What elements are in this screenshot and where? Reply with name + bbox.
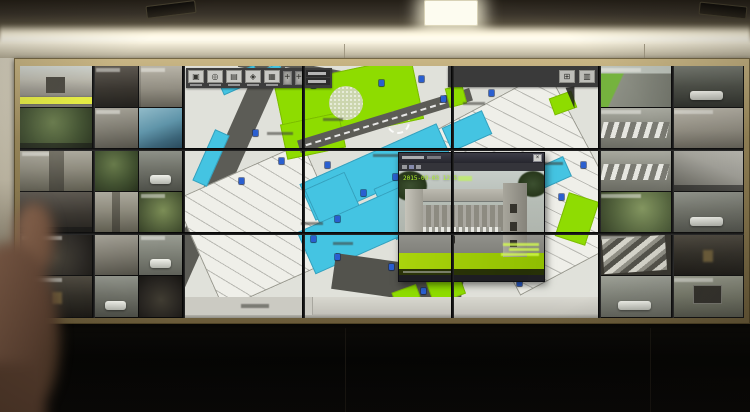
- monitor-bezel: [20, 148, 744, 151]
- camera-tile[interactable]: [94, 234, 138, 275]
- coordinate-readouts: [306, 70, 330, 86]
- camera-marker-icon[interactable]: [239, 178, 244, 184]
- camera-name-overlay: [501, 243, 539, 256]
- toolbar-slot: ▤: [226, 70, 242, 86]
- camera-tile[interactable]: [20, 108, 93, 149]
- control-chip[interactable]: [409, 165, 414, 169]
- monitor-bezel: [451, 66, 454, 318]
- monitor-bezel: [20, 232, 744, 235]
- map-label-smudge: [267, 132, 293, 135]
- popup-titlebar[interactable]: ×: [399, 153, 544, 163]
- timestamp-smudge: [458, 176, 472, 181]
- coordinate-readout: [306, 78, 330, 85]
- dark-lower-wall: [0, 324, 750, 412]
- camera-tile[interactable]: [94, 192, 138, 233]
- wall-seam: [344, 44, 345, 58]
- monitor-bezel: [92, 66, 95, 318]
- camera-marker-icon[interactable]: [253, 130, 258, 136]
- popup-title-smudge: [427, 156, 441, 159]
- camera-marker-icon[interactable]: [311, 236, 316, 242]
- lower-wall-seam: [345, 328, 346, 412]
- camera-tile[interactable]: [139, 276, 183, 317]
- toolbar-slot: ◎: [207, 70, 223, 86]
- map-label-smudge: [463, 102, 485, 105]
- camera-tile[interactable]: [94, 150, 138, 191]
- camera-tile[interactable]: [94, 276, 138, 317]
- camera-tile[interactable]: [139, 192, 183, 233]
- map-toolbar-button[interactable]: ▤: [226, 70, 242, 83]
- camera-marker-icon[interactable]: [335, 216, 340, 222]
- toolbar-slot: ▦: [264, 70, 280, 86]
- toolbar-slot: ◈: [245, 70, 261, 86]
- wall-strip: [0, 44, 750, 58]
- camera-tile[interactable]: [672, 192, 743, 233]
- map-toolbar: ▣ ◎ ▤ ◈ ▦ + +: [186, 68, 332, 88]
- lower-wall-seam: [650, 328, 651, 412]
- camera-tile[interactable]: [139, 66, 183, 107]
- pan-dpad-icon[interactable]: +: [283, 71, 292, 85]
- timestamp-overlay: 2015-09-03 12:5: [403, 175, 472, 182]
- map-panel[interactable]: ▣ ◎ ▤ ◈ ▦ + +: [183, 66, 599, 318]
- forearm: [0, 363, 46, 412]
- map-side-panel: ⊞▥: [448, 66, 599, 87]
- control-room-photo: ▣ ◎ ▤ ◈ ▦ + +: [0, 0, 750, 412]
- map-panel-button[interactable]: ⊞: [559, 70, 575, 83]
- camera-tile[interactable]: [599, 276, 671, 317]
- camera-marker-icon[interactable]: [489, 90, 494, 96]
- popup-window[interactable]: × 2015-09-0: [398, 152, 545, 282]
- statusbar-left-segment: [183, 297, 313, 315]
- popup-video: 2015-09-03 12:5: [399, 171, 544, 275]
- camera-tile[interactable]: [599, 66, 671, 107]
- camera-tile[interactable]: [20, 150, 93, 191]
- hand-silhouette: [0, 203, 87, 412]
- map-statusbar: [183, 297, 599, 318]
- camera-tile[interactable]: [672, 66, 743, 107]
- camera-marker-icon[interactable]: [421, 288, 426, 294]
- camera-tile[interactable]: [599, 234, 671, 275]
- coordinate-readout: [306, 70, 330, 77]
- map-label-smudge: [333, 242, 353, 245]
- camera-tile[interactable]: [94, 108, 138, 149]
- camera-tile[interactable]: [20, 66, 93, 107]
- map-toolbar-button[interactable]: ▦: [264, 70, 280, 83]
- monitor-bezel: [671, 66, 674, 318]
- camera-marker-icon[interactable]: [279, 158, 284, 164]
- camera-marker-icon[interactable]: [325, 162, 330, 168]
- popup-statusbar: [399, 269, 544, 275]
- camera-tile[interactable]: [672, 276, 743, 317]
- control-chip[interactable]: [402, 165, 407, 169]
- camera-tile[interactable]: [672, 234, 743, 275]
- camera-tile[interactable]: [139, 234, 183, 275]
- map-toolbar-button[interactable]: ◈: [245, 70, 261, 83]
- camera-tile[interactable]: [672, 150, 743, 191]
- camera-marker-icon[interactable]: [335, 254, 340, 260]
- popup-controlbar: [399, 163, 544, 171]
- camera-tile[interactable]: [599, 150, 671, 191]
- overlay-text-smudge: [501, 253, 539, 256]
- camera-marker-icon[interactable]: [361, 190, 366, 196]
- camera-marker-icon[interactable]: [389, 264, 394, 270]
- park-plaza-circle: [329, 86, 363, 120]
- close-icon[interactable]: ×: [533, 154, 542, 162]
- map-toolbar-button[interactable]: ◎: [207, 70, 223, 83]
- camera-tile[interactable]: [139, 108, 183, 149]
- control-chip[interactable]: [416, 165, 421, 169]
- wall-seam: [644, 44, 645, 58]
- camera-marker-icon[interactable]: [581, 162, 586, 168]
- camera-tile[interactable]: [139, 150, 183, 191]
- toolbar-buttons: ▣ ◎ ▤ ◈ ▦: [188, 70, 280, 86]
- map-pointer-shadow: [566, 86, 578, 109]
- camera-marker-icon[interactable]: [379, 80, 384, 86]
- popup-title-smudge: [402, 156, 424, 159]
- monitor-bezel: [302, 66, 305, 318]
- overlay-text-smudge: [509, 248, 539, 251]
- cove-light: [0, 24, 750, 46]
- map-toolbar-button[interactable]: ▣: [188, 70, 204, 83]
- monitor-bezel: [598, 66, 601, 318]
- monitor-bezel: [182, 66, 185, 318]
- camera-tile[interactable]: [599, 192, 671, 233]
- camera-tile[interactable]: [599, 108, 671, 149]
- map-panel-button[interactable]: ▥: [579, 70, 595, 83]
- camera-tile[interactable]: [672, 108, 743, 149]
- overlay-text-smudge: [503, 243, 539, 246]
- camera-marker-icon[interactable]: [441, 96, 446, 102]
- ceiling-light-panel: [424, 0, 478, 26]
- camera-marker-icon[interactable]: [559, 194, 564, 200]
- camera-marker-icon[interactable]: [419, 76, 424, 82]
- video-wall-screens: ▣ ◎ ▤ ◈ ▦ + +: [20, 66, 744, 318]
- camera-tile[interactable]: [94, 66, 138, 107]
- toolbar-slot: ▣: [188, 70, 204, 86]
- map-label-smudge: [323, 118, 343, 121]
